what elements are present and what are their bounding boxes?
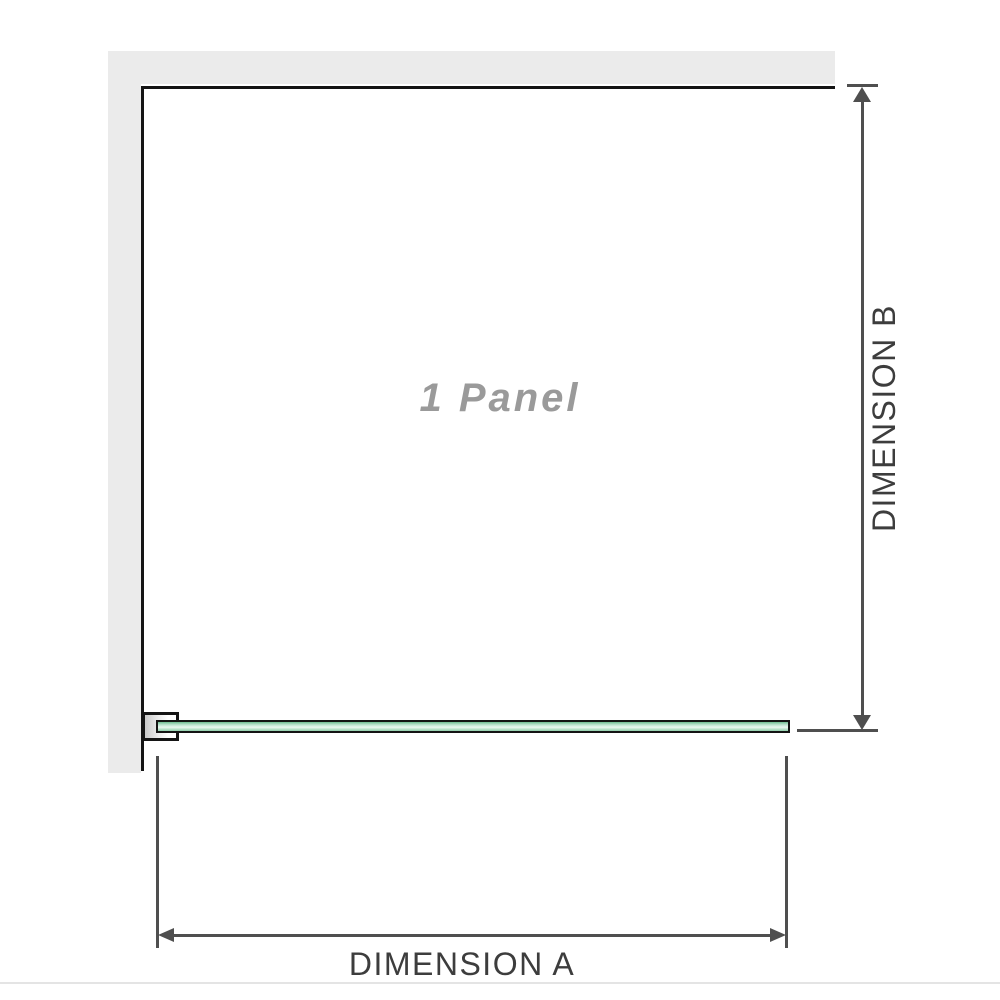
glass-panel (156, 720, 790, 733)
arrow-right-icon (770, 928, 786, 942)
dimension-a-line (170, 934, 774, 937)
dimension-b-line (861, 99, 864, 717)
dimension-a-extension-line-left (156, 756, 159, 948)
footer-divider (0, 982, 1000, 984)
arrow-up-icon (853, 87, 871, 102)
arrow-left-icon (158, 928, 174, 942)
wall-left (108, 51, 141, 773)
panel-count-label: 1 Panel (350, 372, 650, 424)
wall-top (108, 51, 835, 84)
panel-dimension-diagram: 1 Panel DIMENSION B DIMENSION A (0, 0, 1000, 1000)
arrow-down-icon (853, 715, 871, 730)
dimension-a-label: DIMENSION A (262, 946, 662, 982)
dimension-a-extension-line-right (785, 756, 788, 948)
enclosure-outline (141, 86, 835, 771)
dimension-b-label: DIMENSION B (867, 238, 901, 598)
